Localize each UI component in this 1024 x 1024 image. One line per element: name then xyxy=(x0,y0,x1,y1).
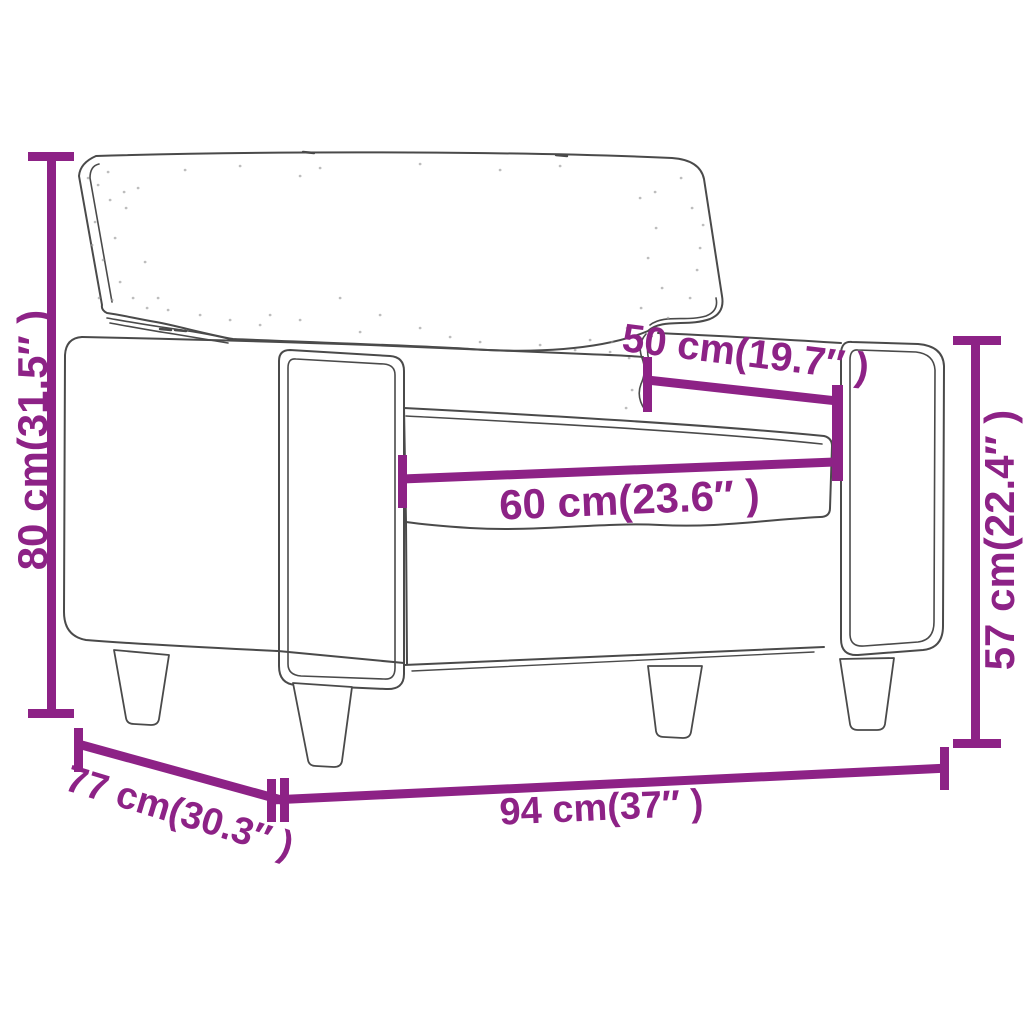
leg-back-left xyxy=(114,650,169,725)
dimension-depth: 77 cm(30.3″ ) xyxy=(61,728,299,867)
shared-right-cap xyxy=(832,385,843,481)
left-arm-side xyxy=(64,337,278,651)
dimension-arm-height: 57 cm(22.4″ ) xyxy=(953,336,1023,748)
leg-front-right xyxy=(840,658,894,730)
leg-front-middle xyxy=(648,666,702,738)
arm-height-bottom-cap xyxy=(953,739,1001,748)
width-label: 94 cm(37″ ) xyxy=(499,782,705,834)
leg-front-left xyxy=(293,683,352,767)
height-label: 80 cm(31.5″ ) xyxy=(9,310,56,571)
width-right-cap xyxy=(940,747,949,790)
height-bottom-cap xyxy=(28,709,74,718)
armchair-dimension-diagram: 80 cm(31.5″ ) 50 cm(19.7″ ) 60 cm(23.6″ … xyxy=(0,0,1024,1024)
arm-height-label: 57 cm(22.4″ ) xyxy=(976,410,1023,671)
diagram-canvas: 80 cm(31.5″ ) 50 cm(19.7″ ) 60 cm(23.6″ … xyxy=(0,0,1024,1024)
left-arm-front-panel xyxy=(279,350,404,689)
dimension-width: 94 cm(37″ ) xyxy=(267,747,949,834)
right-arm-front-panel xyxy=(841,342,944,655)
